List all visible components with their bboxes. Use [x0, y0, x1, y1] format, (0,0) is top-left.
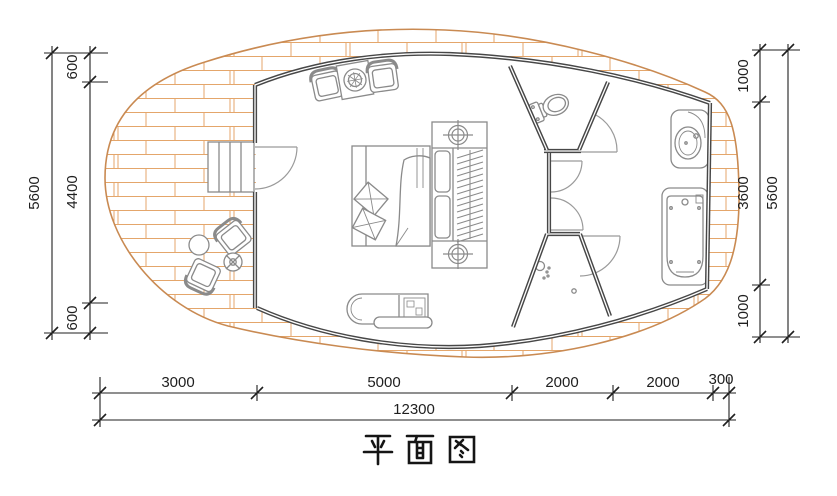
dim-label: 4400: [64, 175, 81, 208]
dim-label: 300: [708, 371, 733, 388]
dim-label: 3000: [161, 374, 194, 391]
dim-label: 2000: [545, 374, 578, 391]
dim-label: 5600: [764, 176, 781, 209]
page-title-text: 平面图: [372, 433, 468, 469]
floor-plan-canvas: 600 4400 600 5600 1000 3600 1000 5600 30…: [0, 0, 837, 496]
dim-label: 5000: [367, 374, 400, 391]
counter: [347, 294, 432, 328]
dim-label: 1000: [735, 294, 752, 327]
page-title: 平面图: [364, 433, 474, 469]
floor-plan-page: 600 4400 600 5600 1000 3600 1000 5600 30…: [0, 0, 837, 496]
dim-label: 1000: [735, 59, 752, 92]
bathtub-icon: [662, 188, 708, 285]
round-table-icon: [189, 235, 209, 255]
dim-label: 600: [64, 305, 81, 330]
dim-label: 3600: [735, 176, 752, 209]
closet: [432, 120, 487, 269]
dim-label: 12300: [393, 401, 435, 418]
sink-icon: [671, 110, 709, 168]
entry-stairs: [208, 142, 254, 192]
dim-label: 600: [64, 54, 81, 79]
dim-label: 5600: [26, 176, 43, 209]
bed: [352, 146, 430, 246]
side-table-icon: [224, 253, 242, 271]
dim-label: 2000: [646, 374, 679, 391]
